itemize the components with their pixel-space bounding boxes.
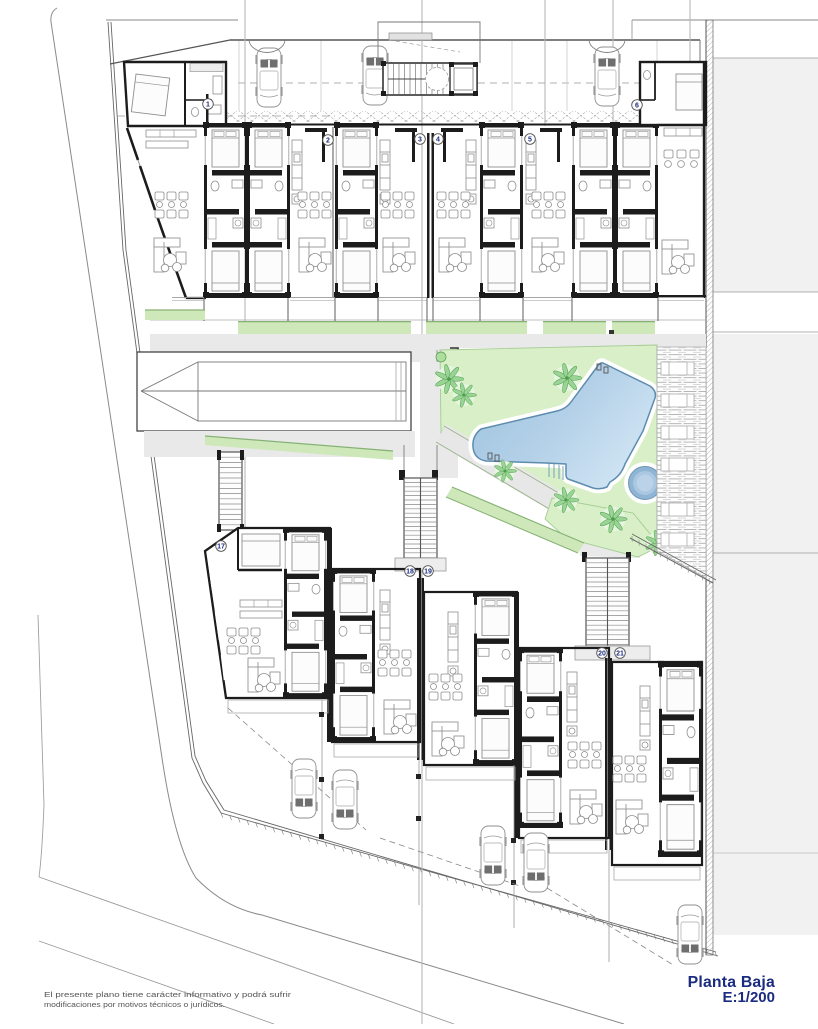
svg-text:4: 4: [436, 136, 440, 143]
svg-text:21: 21: [616, 650, 624, 657]
svg-text:17: 17: [217, 543, 225, 550]
svg-text:modificaciones por motivos téc: modificaciones por motivos técnicos o ju…: [44, 1002, 225, 1009]
svg-text:2: 2: [326, 137, 330, 144]
svg-text:19: 19: [424, 568, 432, 575]
svg-text:E:1/200: E:1/200: [722, 989, 775, 1006]
svg-text:5: 5: [528, 136, 532, 143]
svg-text:1: 1: [206, 101, 210, 108]
svg-text:El presente plano tiene caráct: El presente plano tiene carácter informa…: [44, 992, 292, 999]
svg-text:18: 18: [406, 568, 414, 575]
svg-text:6: 6: [635, 102, 639, 109]
svg-text:20: 20: [598, 650, 606, 657]
svg-text:3: 3: [418, 136, 422, 143]
